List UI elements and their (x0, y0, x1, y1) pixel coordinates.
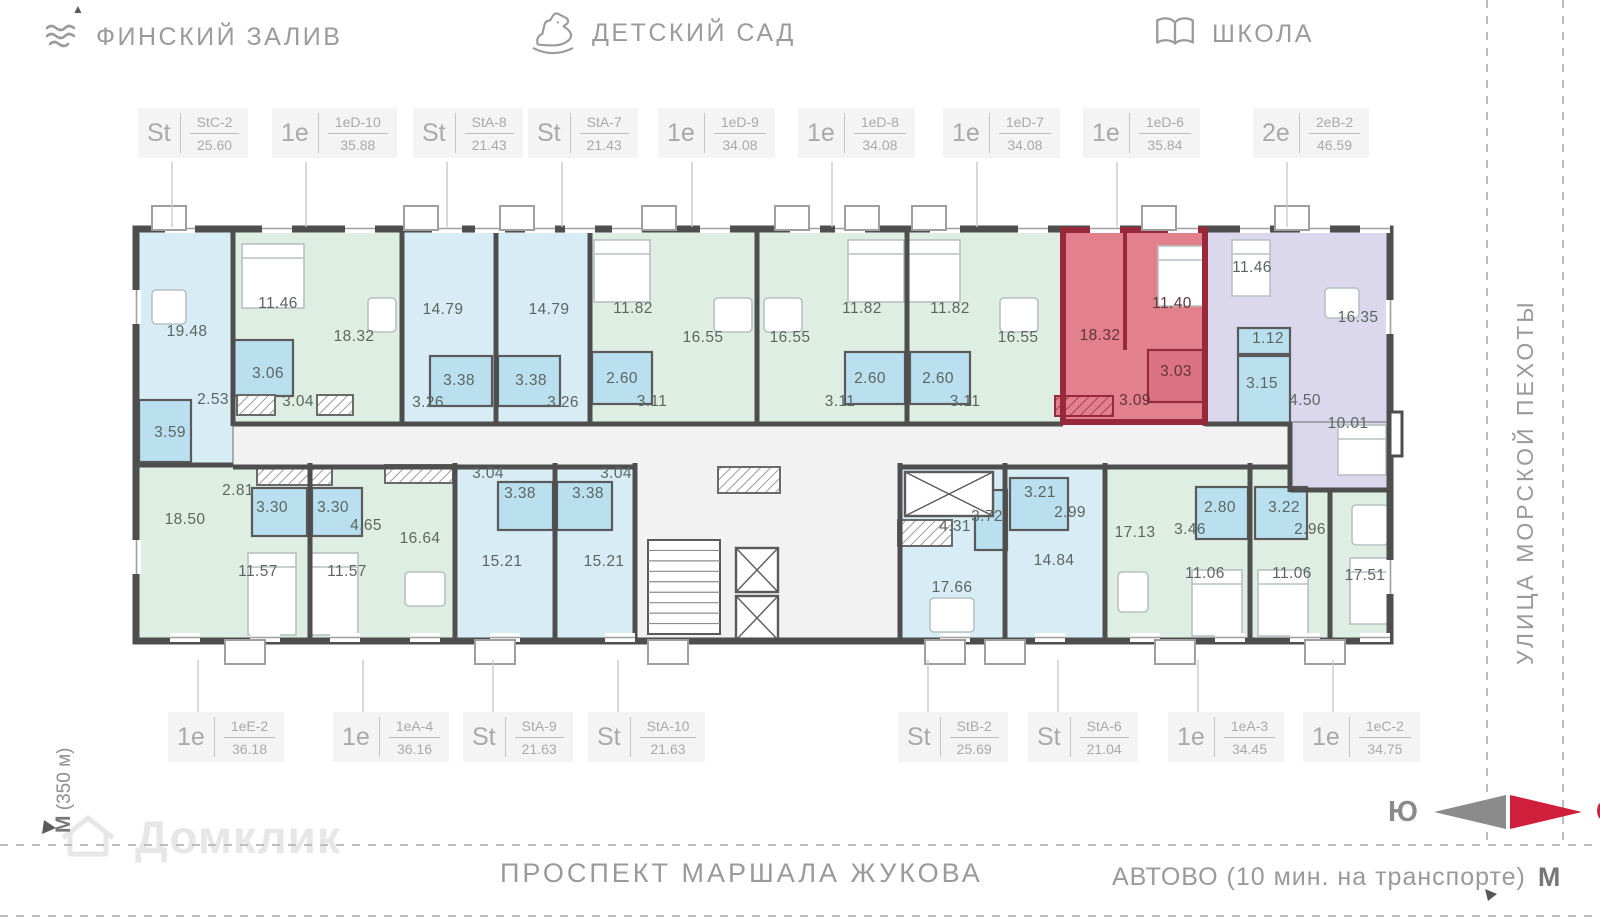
room-area-label: 3.26 (412, 394, 444, 411)
unit-code: StA-7 (580, 113, 629, 134)
table-furniture (930, 598, 974, 632)
bed-furniture (1338, 425, 1386, 475)
room-area-label: 16.55 (998, 329, 1039, 346)
landmark-gulf: ФИНСКИЙ ЗАЛИВ (42, 20, 342, 55)
room-area-label: 3.03 (1160, 363, 1192, 380)
room-area-label: 11.82 (842, 300, 882, 317)
divider (844, 113, 845, 153)
street-right-label: УЛИЦА МОРСКОЙ ПЕХОТЫ (1512, 299, 1539, 665)
room-area-label: 3.38 (572, 485, 604, 502)
unit-label-StC-2[interactable]: StStC-225.60 (138, 108, 248, 158)
room-area-label: 3.04 (282, 393, 314, 410)
room-area-label: 3.59 (154, 424, 186, 441)
unit-type: 1е (1177, 723, 1205, 752)
unit-type: 1е (1092, 119, 1120, 148)
room-area-label: 11.82 (930, 300, 970, 317)
room-area-label: 18.50 (165, 511, 206, 528)
room-area-label: 1.12 (1252, 330, 1284, 347)
unit-label-1еD-9[interactable]: 1е1еD-934.08 (658, 108, 775, 158)
room-area-label: 11.57 (238, 563, 278, 580)
room-area-label: 3.38 (515, 372, 547, 389)
divider (940, 717, 941, 757)
metro-icon: М (1538, 862, 1562, 893)
landmark-school-label: ШКОЛА (1212, 20, 1314, 49)
compass-north-label: С (1596, 796, 1600, 829)
room-area-label: 3.06 (252, 365, 284, 382)
room-area-label: 10.01 (1328, 415, 1369, 432)
hatched-area (257, 467, 332, 485)
balcony (648, 640, 688, 664)
divider (379, 717, 380, 757)
room-area-label: 4.31 (939, 518, 971, 535)
balcony (912, 206, 946, 230)
unit-area: 35.84 (1147, 134, 1182, 153)
unit-area: 46.59 (1317, 134, 1352, 153)
divider (318, 113, 319, 153)
room-area-label: 11.06 (1272, 565, 1312, 582)
table-furniture (152, 290, 186, 324)
balcony (475, 640, 515, 664)
unit-area: 21.04 (1087, 738, 1122, 757)
room-area-label: 2.60 (922, 370, 954, 387)
unit-code: 2еВ-2 (1309, 113, 1360, 134)
divider (1349, 717, 1350, 757)
unit-label-StB-2[interactable]: StStB-225.69 (898, 712, 1008, 762)
room-area-label: 17.66 (932, 579, 973, 596)
landmark-kindergarten-label: ДЕТСКИЙ САД (592, 19, 796, 48)
balcony (775, 206, 809, 230)
room-area-label: 2.99 (1054, 504, 1086, 521)
unit-type: 1е (177, 723, 205, 752)
unit-label-1еЕ-2[interactable]: 1е1еЕ-236.18 (168, 712, 284, 762)
unit-area: 25.69 (957, 738, 992, 757)
unit-type: St (597, 723, 621, 752)
room-area-label: 16.55 (770, 329, 811, 346)
room-area-label: 3.26 (547, 394, 579, 411)
bed-furniture (848, 240, 904, 302)
room-area-label: 11.40 (1152, 295, 1192, 312)
room-area-label: 3.11 (825, 393, 856, 410)
north-pointer-icon: ▲ (72, 2, 84, 16)
unit-code: 1еС-2 (1359, 717, 1411, 738)
table-furniture (405, 572, 445, 606)
balcony (152, 206, 186, 230)
unit-type: St (537, 119, 561, 148)
balcony (500, 206, 534, 230)
room-area-label: 3.15 (1246, 375, 1278, 392)
hatched-area (237, 395, 275, 415)
balcony (1142, 206, 1176, 230)
room-area-label: 18.32 (1080, 327, 1121, 344)
unit-type: 1е (807, 119, 835, 148)
corridor (233, 422, 1290, 467)
landmark-gulf-label: ФИНСКИЙ ЗАЛИВ (96, 23, 342, 52)
unit-type: 1е (667, 119, 695, 148)
room-area-label: 3.11 (637, 393, 668, 410)
unit-label-StA-7[interactable]: StStA-721.43 (528, 108, 638, 158)
unit-label-StA-8[interactable]: StStA-821.43 (413, 108, 523, 158)
bed-furniture (908, 240, 960, 302)
room-area-label: 2.53 (197, 391, 229, 408)
unit-area: 34.45 (1232, 738, 1267, 757)
compass-south-label: Ю (1388, 796, 1418, 829)
divider (505, 717, 506, 757)
balcony (1305, 640, 1345, 664)
divider (1129, 113, 1130, 153)
unit-type: St (907, 723, 931, 752)
room-area-label: 3.09 (1119, 392, 1151, 409)
unit-label-1еС-2[interactable]: 1е1еС-234.75 (1303, 712, 1420, 762)
unit-area: 36.18 (232, 738, 267, 757)
table-furniture (368, 298, 396, 332)
unit-type: St (147, 119, 171, 148)
unit-label-1еА-3[interactable]: 1е1еА-334.45 (1168, 712, 1284, 762)
compass-arrows-icon (1428, 792, 1586, 832)
landmark-kindergarten: ДЕТСКИЙ САД (528, 6, 796, 61)
room-area-label: 15.21 (584, 553, 625, 570)
room-area-label: 14.79 (529, 301, 570, 318)
divider (1299, 113, 1300, 153)
room-area-label: 2.60 (606, 370, 638, 387)
room-area-label: 3.22 (1268, 499, 1300, 516)
divider (214, 717, 215, 757)
room-area-label: 3.38 (443, 372, 475, 389)
room-area-label: 2.81 (222, 482, 254, 499)
divider (1070, 717, 1071, 757)
room-area-label: 3.30 (317, 499, 349, 516)
room-area-label: 11.06 (1185, 565, 1225, 582)
room-area-label: 4.50 (1289, 392, 1321, 409)
divider (630, 717, 631, 757)
street-bottom-label: ПРОСПЕКТ МАРШАЛА ЖУКОВА (500, 858, 983, 889)
book-icon (1152, 14, 1198, 55)
balcony (1275, 206, 1309, 230)
unit-label-1еD-6[interactable]: 1е1еD-635.84 (1083, 108, 1200, 158)
unit-code: StC-2 (190, 113, 240, 134)
unit-type: 1е (281, 119, 309, 148)
room-area-label: 3.04 (472, 465, 504, 482)
unit-label-1еА-4[interactable]: 1е1еА-436.16 (333, 712, 449, 762)
balcony (225, 640, 265, 664)
room-area-label: 2.60 (854, 370, 886, 387)
table-furniture (1352, 505, 1388, 545)
table-furniture (1118, 572, 1148, 612)
room-area-label: 11.82 (613, 300, 653, 317)
unit-area: 35.88 (340, 134, 375, 153)
unit-code: StB-2 (950, 717, 999, 738)
unit-code: 1еА-4 (389, 717, 440, 738)
room-area-label: 3.46 (1174, 521, 1206, 538)
balcony (925, 640, 965, 664)
unit-label-1еD-8[interactable]: 1е1еD-834.08 (798, 108, 915, 158)
room-area-label: 2.96 (1294, 521, 1326, 538)
unit-code: StA-9 (515, 717, 564, 738)
table-furniture (1000, 298, 1038, 332)
staircase (648, 540, 720, 634)
unit-area: 21.43 (587, 134, 622, 153)
room-area-label: 16.35 (1338, 309, 1379, 326)
balcony (642, 206, 676, 230)
rocking-horse-icon (528, 6, 578, 61)
room-area-label: 3.30 (256, 499, 288, 516)
divider (704, 113, 705, 153)
unit-label-StA-10[interactable]: StStA-1021.63 (588, 712, 705, 762)
hatched-area (317, 395, 353, 415)
unit-area: 36.16 (397, 738, 432, 757)
unit-type: 1е (342, 723, 370, 752)
unit-type: 1е (1312, 723, 1340, 752)
unit-label-StA-6[interactable]: StStA-621.04 (1028, 712, 1138, 762)
room-area-label: 11.46 (258, 295, 298, 312)
divider (989, 113, 990, 153)
unit-type: St (1037, 723, 1061, 752)
unit-area: 34.08 (722, 134, 757, 153)
unit-code: 1еЕ-2 (224, 717, 275, 738)
balcony (845, 206, 879, 230)
unit-area: 21.63 (522, 738, 557, 757)
room-area-label: 16.64 (400, 530, 441, 547)
waves-icon (42, 20, 82, 55)
unit-type: 1е (952, 119, 980, 148)
unit-code: StA-10 (640, 717, 697, 738)
balcony (404, 206, 438, 230)
room-area-label: 11.57 (327, 563, 367, 580)
unit-area: 21.63 (651, 738, 686, 757)
bed-furniture (594, 240, 650, 302)
unit-type: St (472, 723, 496, 752)
unit-type: St (422, 119, 446, 148)
divider (455, 113, 456, 153)
compass: Ю С (1388, 792, 1600, 832)
unit-type: 2е (1262, 119, 1290, 148)
unit-code: 1еА-3 (1224, 717, 1275, 738)
room-area-label: 15.21 (482, 553, 523, 570)
room-area-label: 18.32 (334, 328, 375, 345)
divider (1214, 717, 1215, 757)
balcony (985, 640, 1025, 664)
room-area-label: 3.72 (971, 508, 1003, 525)
room-area-label: 14.79 (423, 301, 464, 318)
room-area-label: 3.21 (1024, 484, 1056, 501)
room-area-label: 3.38 (504, 485, 536, 502)
unit-area: 34.75 (1367, 738, 1402, 757)
unit-label-1еD-10[interactable]: 1е1еD-1035.88 (272, 108, 397, 158)
table-furniture (764, 298, 802, 332)
unit-code: StA-6 (1080, 717, 1129, 738)
unit-area: 34.08 (862, 134, 897, 153)
unit-label-1еD-7[interactable]: 1е1еD-734.08 (943, 108, 1060, 158)
metro-left-arrow-icon (40, 816, 60, 836)
room-area-label: 11.46 (1232, 259, 1272, 276)
unit-code: 1еD-6 (1139, 113, 1191, 134)
metro-cursor-icon (1484, 888, 1498, 902)
divider (180, 113, 181, 153)
unit-code: 1еD-9 (714, 113, 766, 134)
unit-label-2еВ-2[interactable]: 2е2еВ-246.59 (1253, 108, 1369, 158)
room-area-label: 17.51 (1345, 567, 1386, 584)
unit-area: 21.43 (472, 134, 507, 153)
unit-code: StA-8 (465, 113, 514, 134)
room-area-label: 16.55 (683, 329, 724, 346)
room-area-label: 19.48 (167, 323, 208, 340)
unit-label-StA-9[interactable]: StStA-921.63 (463, 712, 573, 762)
unit-code: 1еD-7 (999, 113, 1051, 134)
building-bump (1390, 412, 1402, 456)
unit-code: 1еD-8 (854, 113, 906, 134)
unit-code: 1еD-10 (328, 113, 388, 134)
hatched-area (718, 467, 780, 493)
table-furniture (714, 298, 752, 332)
room-area-label: 2.80 (1204, 499, 1236, 516)
room-area-label: 3.04 (600, 465, 632, 482)
balcony (1155, 640, 1195, 664)
room-area-label: 3.11 (950, 393, 981, 410)
landmark-school: ШКОЛА (1152, 14, 1314, 55)
room-area-label: 4.65 (350, 517, 382, 534)
room-area-label: 17.13 (1115, 524, 1156, 541)
unit-area: 34.08 (1007, 134, 1042, 153)
unit-area: 25.60 (197, 134, 232, 153)
room-area-label: 14.84 (1034, 552, 1075, 569)
divider (570, 113, 571, 153)
